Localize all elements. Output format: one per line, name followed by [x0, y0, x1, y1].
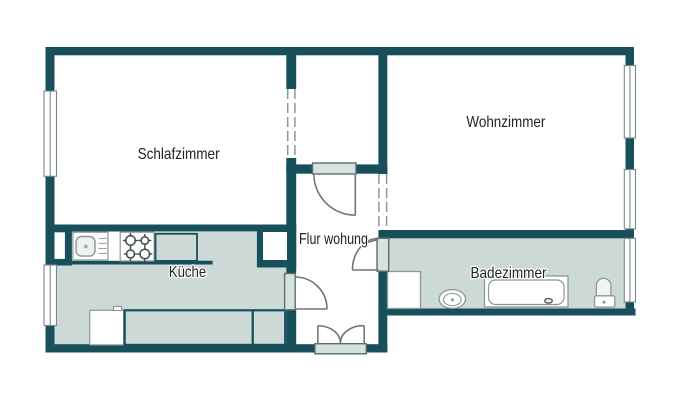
svg-text:Badezimmer: Badezimmer [471, 265, 548, 282]
svg-text:Schlafzimmer: Schlafzimmer [138, 146, 221, 163]
svg-text:Wohnzimmer: Wohnzimmer [466, 114, 546, 131]
svg-text:Küche: Küche [169, 264, 207, 281]
svg-text:Flur wohung: Flur wohung [299, 231, 368, 248]
